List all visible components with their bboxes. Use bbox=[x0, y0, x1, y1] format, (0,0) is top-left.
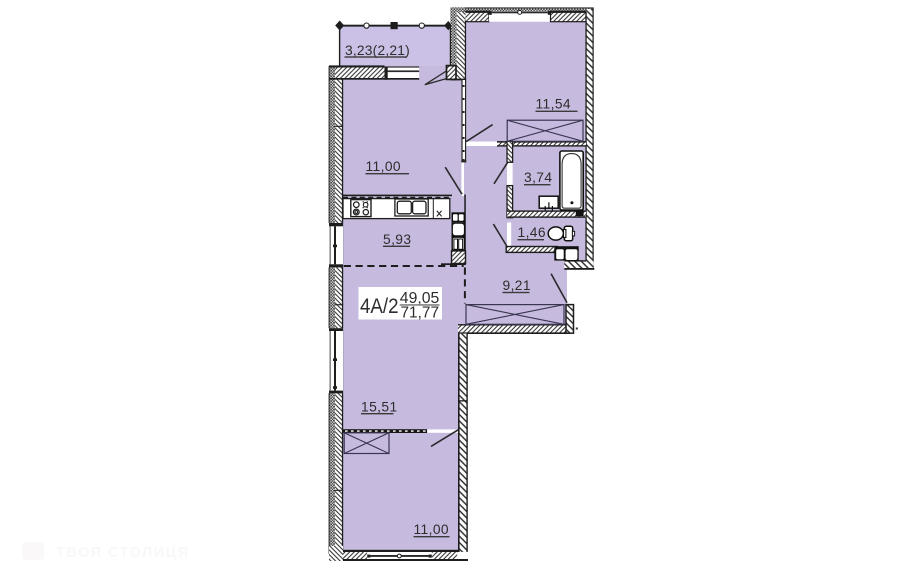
svg-text:11,00: 11,00 bbox=[414, 522, 450, 537]
svg-text:71,77: 71,77 bbox=[401, 305, 440, 322]
svg-text:3,23(2,21): 3,23(2,21) bbox=[345, 43, 410, 58]
svg-text:15,51: 15,51 bbox=[361, 400, 398, 415]
svg-text:4А/2: 4А/2 bbox=[360, 295, 399, 318]
svg-text:11,00: 11,00 bbox=[366, 159, 402, 174]
svg-text:1,46: 1,46 bbox=[518, 225, 546, 240]
svg-text:5,93: 5,93 bbox=[383, 232, 411, 247]
svg-text:ТВОЯ СТОЛИЦЯ: ТВОЯ СТОЛИЦЯ bbox=[56, 545, 190, 561]
svg-text:9,21: 9,21 bbox=[503, 278, 531, 293]
svg-text:3,74: 3,74 bbox=[524, 170, 552, 185]
svg-text:11,54: 11,54 bbox=[536, 97, 572, 112]
